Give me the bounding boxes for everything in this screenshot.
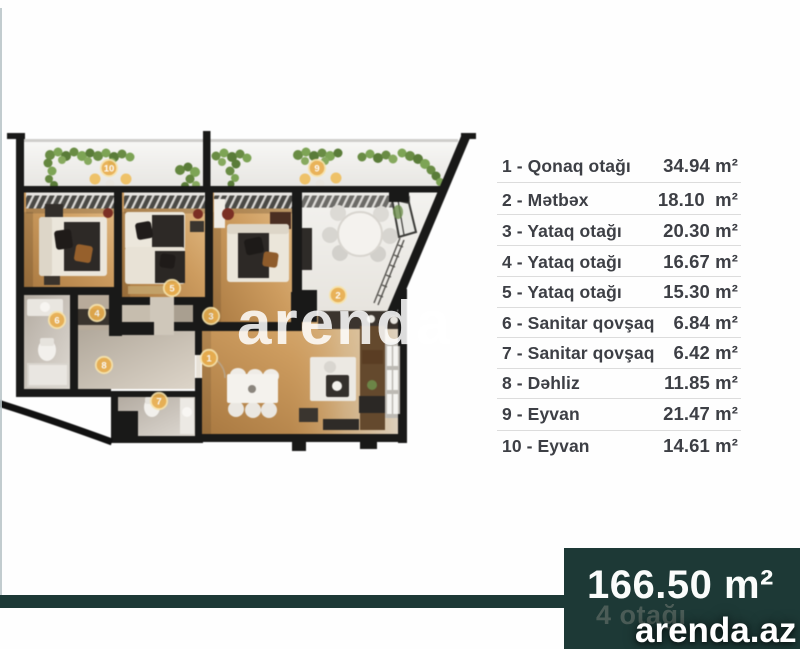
svg-text:3: 3 [208,312,213,323]
svg-text:8: 8 [101,361,106,372]
svg-text:5: 5 [169,284,175,295]
svg-text:7: 7 [156,397,161,408]
svg-text:4: 4 [94,309,100,320]
svg-text:9: 9 [314,164,319,175]
svg-text:10: 10 [104,164,115,175]
svg-text:1: 1 [206,354,212,365]
svg-text:6: 6 [54,316,59,327]
